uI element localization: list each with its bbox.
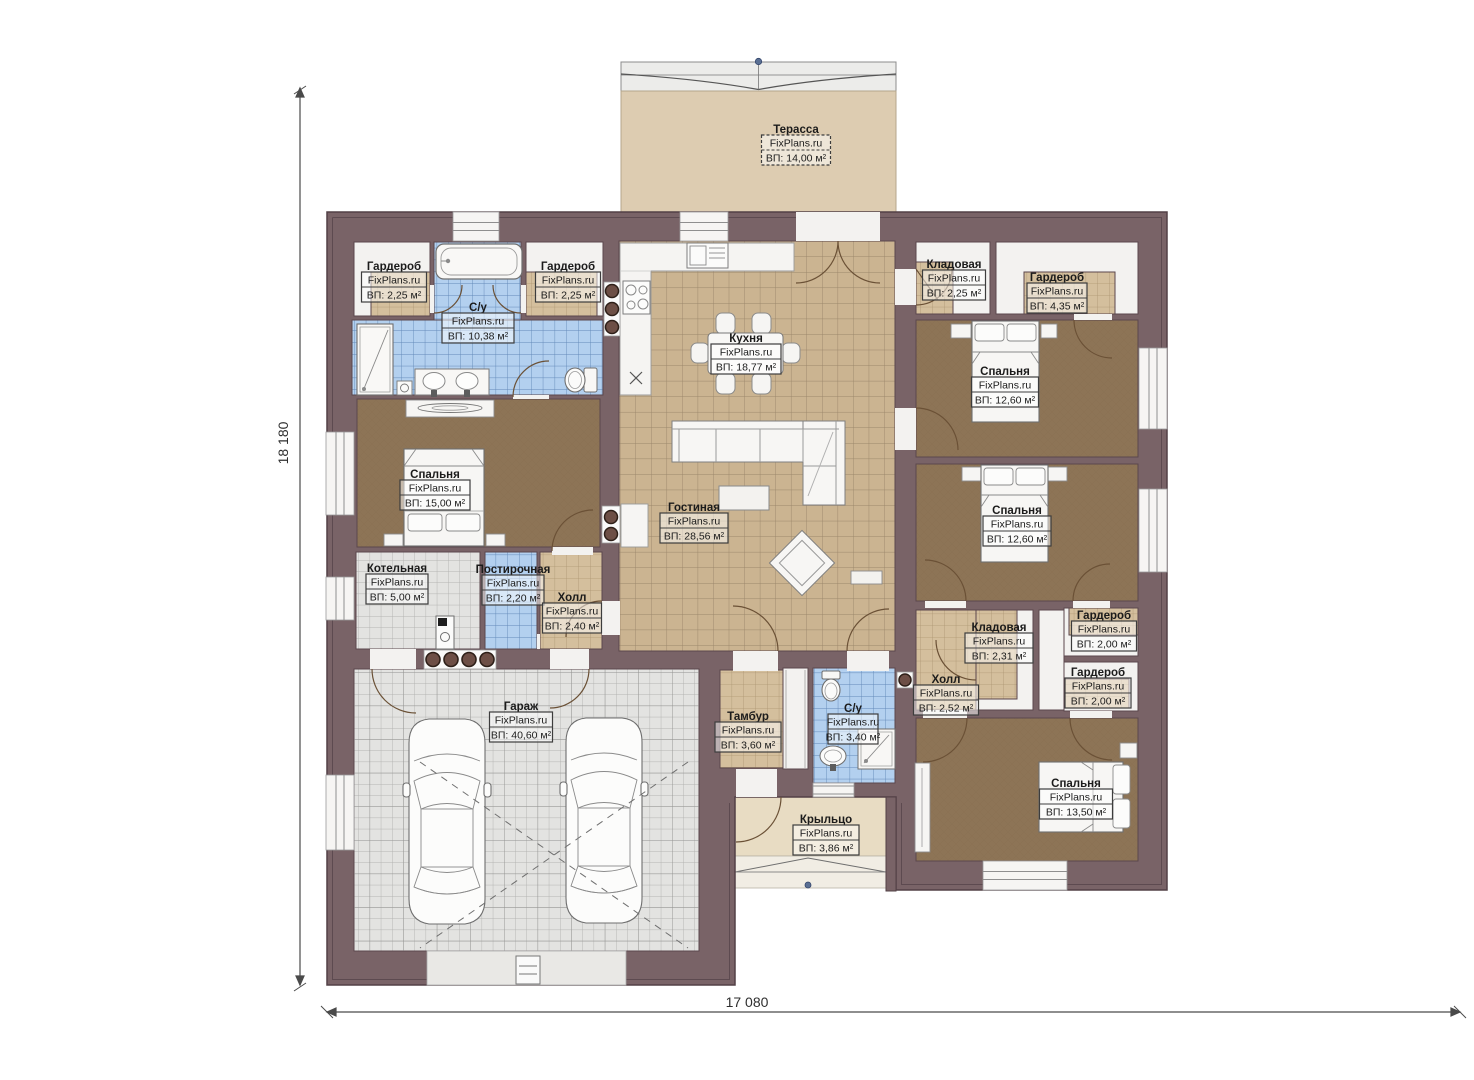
- svg-text:Спальня: Спальня: [992, 505, 1042, 517]
- svg-text:FixPlans.ru: FixPlans.ru: [1031, 286, 1084, 298]
- svg-text:17 080: 17 080: [726, 994, 769, 1010]
- svg-text:Гардероб: Гардероб: [1030, 272, 1084, 284]
- svg-text:18 180: 18 180: [275, 421, 291, 464]
- svg-text:ВП: 2,25 м²: ВП: 2,25 м²: [541, 290, 596, 302]
- svg-text:Спальня: Спальня: [410, 469, 460, 481]
- svg-text:FixPlans.ru: FixPlans.ru: [979, 380, 1032, 392]
- svg-text:ВП: 13,50 м²: ВП: 13,50 м²: [1046, 807, 1107, 819]
- svg-text:С/у: С/у: [844, 703, 863, 715]
- svg-text:ВП: 18,77 м²: ВП: 18,77 м²: [716, 362, 777, 374]
- svg-text:ВП: 3,60 м²: ВП: 3,60 м²: [721, 740, 776, 752]
- svg-text:ВП: 15,00 м²: ВП: 15,00 м²: [405, 498, 466, 510]
- svg-text:Гараж: Гараж: [504, 701, 539, 713]
- svg-text:Котельная: Котельная: [367, 563, 427, 575]
- svg-text:FixPlans.ru: FixPlans.ru: [991, 519, 1044, 531]
- svg-text:Спальня: Спальня: [1051, 778, 1101, 790]
- svg-text:FixPlans.ru: FixPlans.ru: [720, 347, 773, 359]
- svg-text:ВП: 2,52 м²: ВП: 2,52 м²: [919, 703, 974, 715]
- svg-text:FixPlans.ru: FixPlans.ru: [770, 138, 823, 150]
- svg-text:FixPlans.ru: FixPlans.ru: [495, 715, 548, 727]
- svg-text:ВП: 2,25 м²: ВП: 2,25 м²: [367, 290, 422, 302]
- svg-text:ВП: 4,35 м²: ВП: 4,35 м²: [1030, 301, 1085, 313]
- svg-text:ВП: 12,60 м²: ВП: 12,60 м²: [975, 395, 1036, 407]
- svg-text:ВП: 2,31 м²: ВП: 2,31 м²: [972, 651, 1027, 663]
- svg-text:ВП: 2,00 м²: ВП: 2,00 м²: [1077, 639, 1132, 651]
- svg-text:FixPlans.ru: FixPlans.ru: [1050, 792, 1103, 804]
- svg-text:Гардероб: Гардероб: [1071, 667, 1125, 679]
- svg-text:Кладовая: Кладовая: [971, 622, 1026, 634]
- svg-text:Гостиная: Гостиная: [668, 502, 720, 514]
- svg-text:С/у: С/у: [469, 302, 488, 314]
- svg-text:FixPlans.ru: FixPlans.ru: [1072, 681, 1125, 693]
- svg-text:Тамбур: Тамбур: [727, 711, 769, 723]
- svg-text:ВП: 2,00 м²: ВП: 2,00 м²: [1071, 696, 1126, 708]
- svg-text:Кухня: Кухня: [729, 333, 763, 345]
- svg-text:ВП: 10,38 м²: ВП: 10,38 м²: [448, 331, 509, 343]
- svg-text:FixPlans.ru: FixPlans.ru: [920, 688, 973, 700]
- svg-text:FixPlans.ru: FixPlans.ru: [368, 275, 421, 287]
- svg-text:ВП: 14,00 м²: ВП: 14,00 м²: [766, 153, 827, 165]
- svg-text:ВП: 2,40 м²: ВП: 2,40 м²: [545, 621, 600, 633]
- svg-text:ВП: 28,56 м²: ВП: 28,56 м²: [664, 531, 725, 543]
- svg-text:FixPlans.ru: FixPlans.ru: [409, 483, 462, 495]
- svg-text:FixPlans.ru: FixPlans.ru: [1078, 624, 1131, 636]
- svg-text:FixPlans.ru: FixPlans.ru: [542, 275, 595, 287]
- svg-text:FixPlans.ru: FixPlans.ru: [452, 316, 505, 328]
- svg-text:FixPlans.ru: FixPlans.ru: [928, 273, 981, 285]
- svg-text:Гардероб: Гардероб: [367, 261, 421, 273]
- svg-text:Холл: Холл: [932, 674, 961, 686]
- svg-text:FixPlans.ru: FixPlans.ru: [973, 636, 1026, 648]
- svg-text:Постирочная: Постирочная: [476, 564, 551, 576]
- svg-text:ВП: 5,00 м²: ВП: 5,00 м²: [370, 592, 425, 604]
- svg-text:FixPlans.ru: FixPlans.ru: [827, 717, 880, 729]
- svg-text:FixPlans.ru: FixPlans.ru: [800, 828, 853, 840]
- svg-text:FixPlans.ru: FixPlans.ru: [371, 577, 424, 589]
- svg-text:Спальня: Спальня: [980, 366, 1030, 378]
- svg-text:FixPlans.ru: FixPlans.ru: [546, 606, 599, 618]
- svg-text:ВП: 3,86 м²: ВП: 3,86 м²: [799, 843, 854, 855]
- svg-text:ВП: 12,60 м²: ВП: 12,60 м²: [987, 534, 1048, 546]
- svg-text:Кладовая: Кладовая: [926, 259, 981, 271]
- svg-text:Гардероб: Гардероб: [1077, 610, 1131, 622]
- svg-text:FixPlans.ru: FixPlans.ru: [487, 578, 540, 590]
- svg-text:ВП: 40,60 м²: ВП: 40,60 м²: [491, 730, 552, 742]
- svg-text:Терасса: Терасса: [773, 124, 819, 136]
- svg-text:Гардероб: Гардероб: [541, 261, 595, 273]
- svg-text:ВП: 3,40 м²: ВП: 3,40 м²: [826, 732, 881, 744]
- svg-text:Крыльцо: Крыльцо: [800, 814, 852, 826]
- svg-text:FixPlans.ru: FixPlans.ru: [668, 516, 721, 528]
- svg-text:ВП: 2,20 м²: ВП: 2,20 м²: [486, 593, 541, 605]
- svg-text:Холл: Холл: [558, 592, 587, 604]
- svg-text:ВП: 2,25 м²: ВП: 2,25 м²: [927, 288, 982, 300]
- svg-text:FixPlans.ru: FixPlans.ru: [722, 725, 775, 737]
